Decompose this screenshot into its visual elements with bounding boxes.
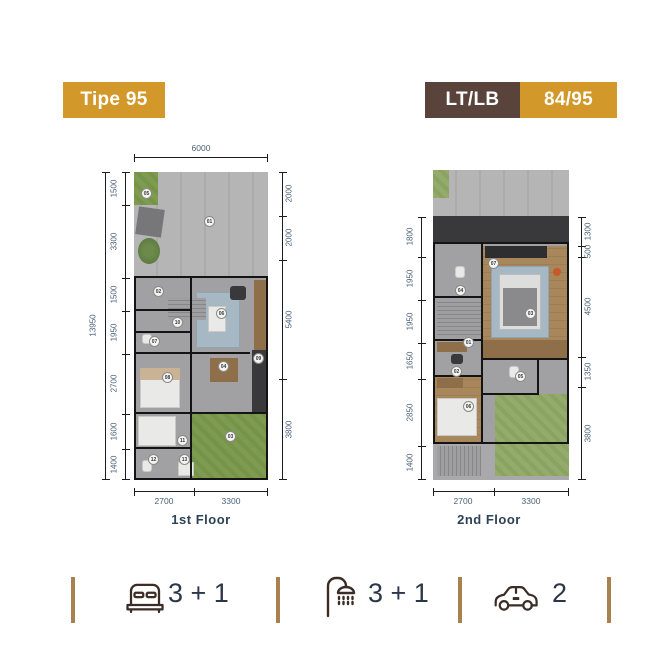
floor1-left-dim: 1400 [110,445,119,485]
floor2-caption: 2nd Floor [439,512,539,527]
wall [134,331,192,333]
garage-count: 2 [552,578,567,609]
car-icon [492,582,540,614]
floor1-caption: 1st Floor [151,512,251,527]
roof-edge-band [433,216,569,242]
floor2-left-dim: 2850 [406,393,415,433]
room-label: 05 [141,188,152,199]
floor1-top-ruler [134,157,268,158]
floor1-bottom-dim: 2700 [142,496,186,506]
roof-strip [437,446,481,476]
floor1-total-dim: 13950 [89,306,98,346]
tree [138,238,160,264]
room-label: 04 [218,361,229,372]
floor2-bottom-dim: 2700 [441,496,485,506]
floorplan-sheet: Tipe 95 LT/LB 84/95 6000 13950 1500 3300… [0,0,666,654]
room-label: 03 [225,431,236,442]
floor2-left-dim: 1650 [406,341,415,381]
floor1-left-dim: 3300 [110,222,119,262]
bedrooms-count: 3 + 1 [168,578,229,609]
floor1-total-ruler [105,172,106,480]
room-label: 01 [463,337,474,348]
floor2-right-ruler [581,217,582,480]
wall [134,412,268,414]
wall [481,393,539,395]
wall [537,358,539,395]
floor1-right-ruler [282,172,283,480]
room-label: 06 [216,308,227,319]
room-label: 02 [153,286,164,297]
floor2-left-dim: 1400 [406,443,415,483]
floor1-right-dim: 2000 [285,174,294,214]
floor2-left-dim: 1950 [406,259,415,299]
wall [134,352,250,354]
ltlb-label-badge: LT/LB [425,82,520,118]
floor1-top-dim: 6000 [179,143,223,153]
floor1-right-dim: 5400 [285,300,294,340]
room-label: 04 [455,285,466,296]
room-label: 09 [253,353,264,364]
floor1-left-dim: 1500 [110,169,119,209]
floor1-left-ruler [125,172,126,480]
floor2-bottom-dim: 3300 [509,496,553,506]
bed-icon [124,580,166,616]
divider [71,577,75,623]
room-label: 12 [148,454,159,465]
floor2-right-dim: 500 [584,232,593,272]
floor2-left-dim: 1950 [406,302,415,342]
wall [481,358,569,360]
floor1-left-dim: 2700 [110,364,119,404]
floor1-bottom-dim: 3300 [209,496,253,506]
floor1-plan: 05 01 02 06 10 07 08 04 09 03 11 12 13 [134,172,268,480]
wall [134,309,192,311]
floor1-bottom-ruler [134,491,268,492]
wall [134,447,192,449]
room-label: 10 [172,317,183,328]
perimeter-wall [134,276,268,480]
divider [458,577,462,623]
planter-box [135,206,165,237]
floor1-right-dim: 3800 [285,410,294,450]
type-badge: Tipe 95 [63,82,165,118]
room-label: 03 [525,308,536,319]
floor2-plan: 07 04 03 01 02 05 06 [433,170,569,480]
floor1-left-dim: 1950 [110,313,119,353]
divider [276,577,280,623]
floor1-left-dim: 1500 [110,275,119,315]
bathrooms-count: 3 + 1 [368,578,429,609]
floor2-right-dim: 3800 [584,414,593,454]
floor2-right-dim: 1350 [584,352,593,392]
divider [607,577,611,623]
wall [433,296,481,298]
roof-concrete [433,170,569,216]
room-label: 02 [451,366,462,377]
ltlb-value-badge: 84/95 [520,82,617,118]
wall [190,276,192,480]
floor2-left-ruler [421,217,422,480]
floor2-right-dim: 4500 [584,287,593,327]
room-label: 06 [463,401,474,412]
garden-patch [433,170,449,198]
floor1-right-dim: 2000 [285,218,294,258]
room-label: 13 [179,454,190,465]
floor2-bottom-ruler [433,491,569,492]
room-label: 11 [177,435,188,446]
wall [481,242,483,444]
room-label: 05 [515,371,526,382]
room-label: 08 [162,372,173,383]
floor2-left-dim: 1800 [406,217,415,257]
shower-icon [322,574,358,618]
room-label: 07 [488,258,499,269]
room-label: 01 [204,216,215,227]
room-label: 07 [149,336,160,347]
perimeter-wall [433,242,569,444]
